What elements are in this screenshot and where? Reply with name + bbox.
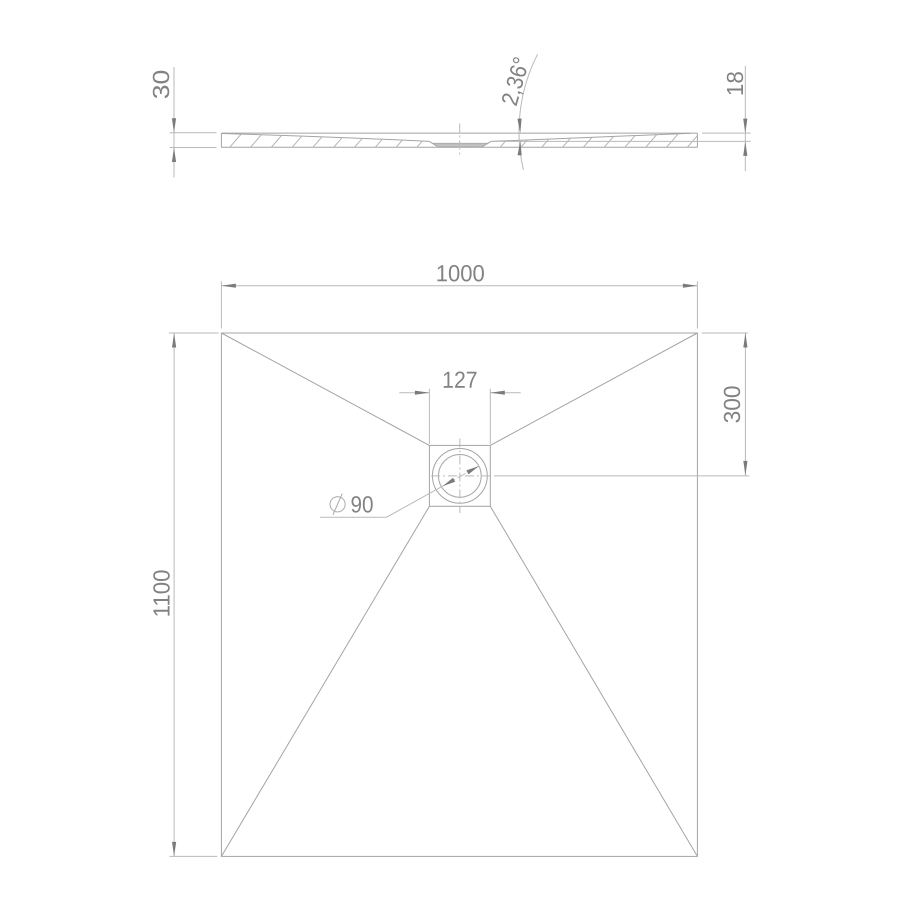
svg-text:2,36°: 2,36° <box>496 54 534 108</box>
svg-text:18: 18 <box>722 71 748 96</box>
svg-text:30: 30 <box>148 70 174 100</box>
svg-text:1000: 1000 <box>436 260 485 286</box>
svg-text:127: 127 <box>442 367 478 393</box>
svg-text:1100: 1100 <box>148 569 174 617</box>
svg-text:300: 300 <box>719 385 745 423</box>
svg-text:90: 90 <box>350 491 373 517</box>
